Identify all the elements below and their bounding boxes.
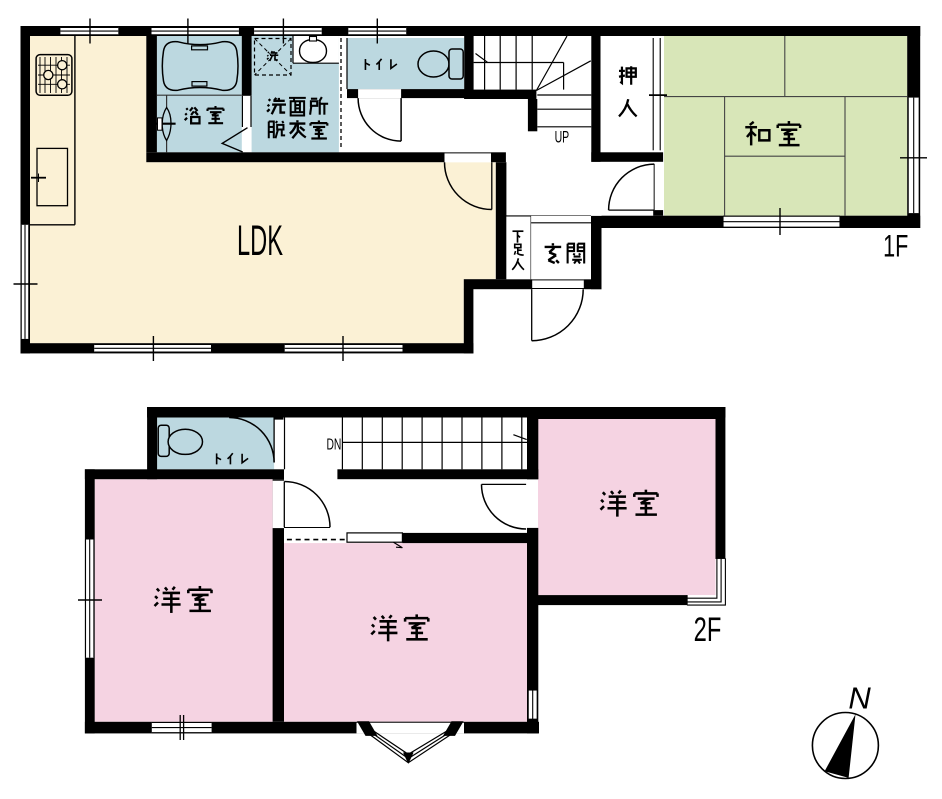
- svg-text:N: N: [848, 681, 871, 716]
- svg-text:DN: DN: [326, 436, 341, 453]
- svg-text:2F: 2F: [694, 611, 722, 649]
- svg-text:LDK: LDK: [237, 217, 283, 265]
- svg-text:1F: 1F: [883, 228, 908, 264]
- svg-text:UP: UP: [555, 129, 570, 147]
